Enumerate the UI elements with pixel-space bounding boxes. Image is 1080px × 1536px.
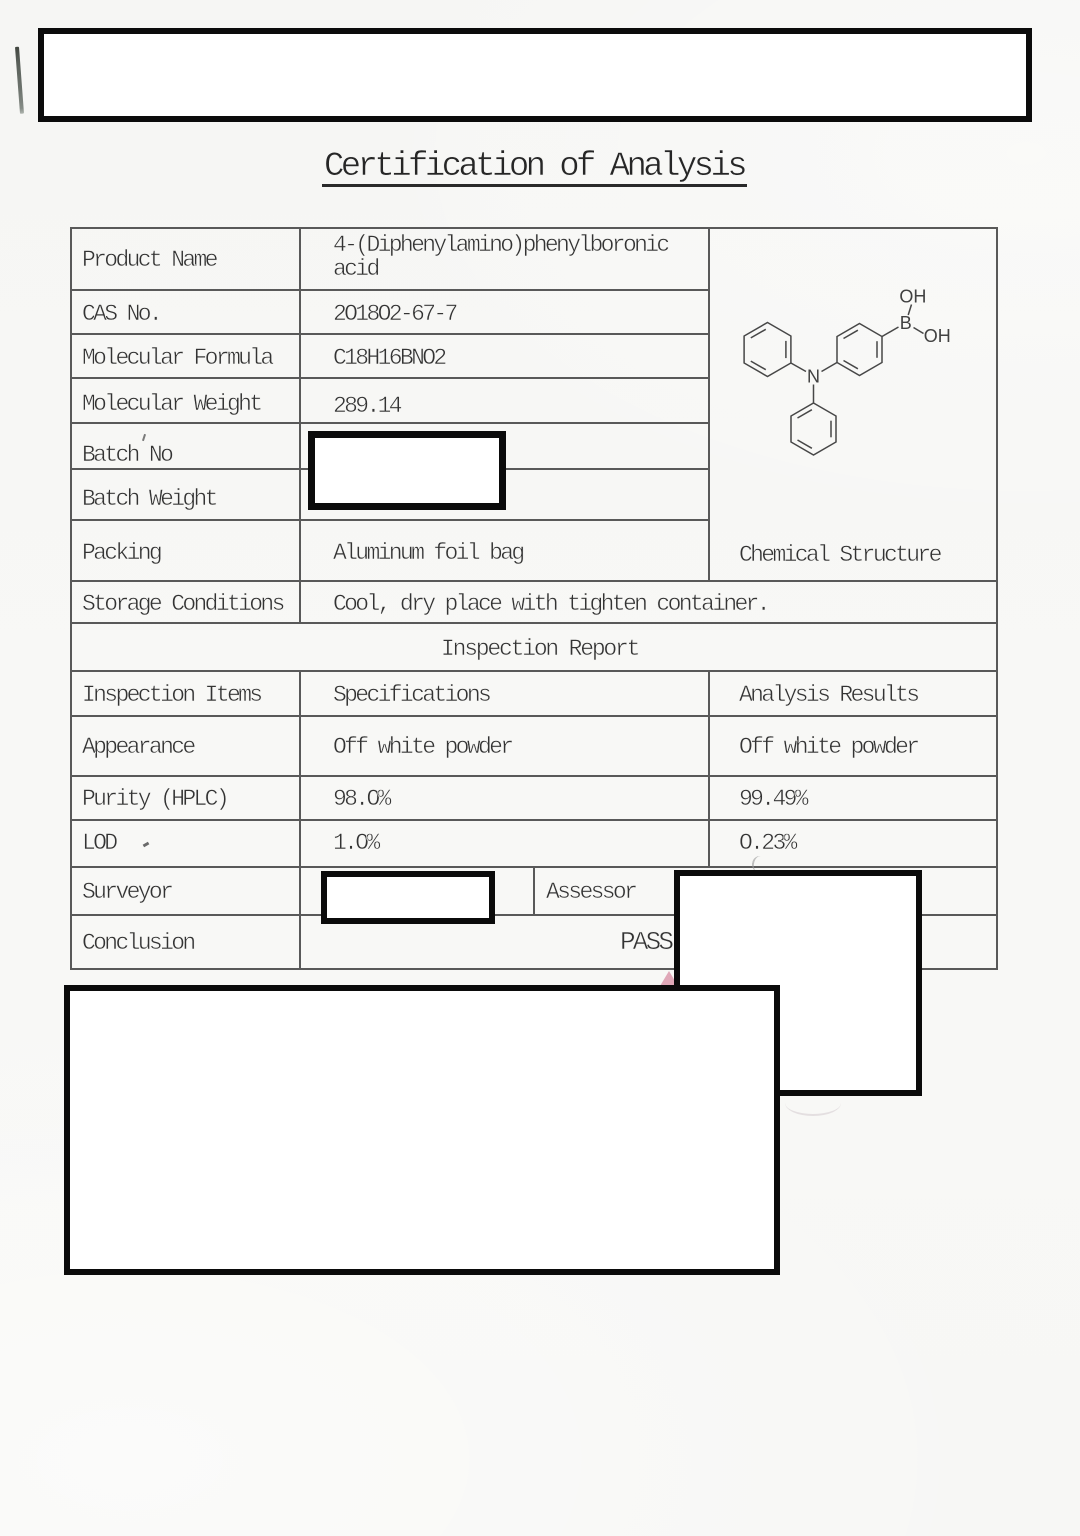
svg-text:OH: OH (899, 286, 926, 306)
svg-text:OH: OH (924, 326, 951, 346)
svg-text:B: B (900, 313, 912, 333)
svg-text:N: N (807, 367, 820, 387)
